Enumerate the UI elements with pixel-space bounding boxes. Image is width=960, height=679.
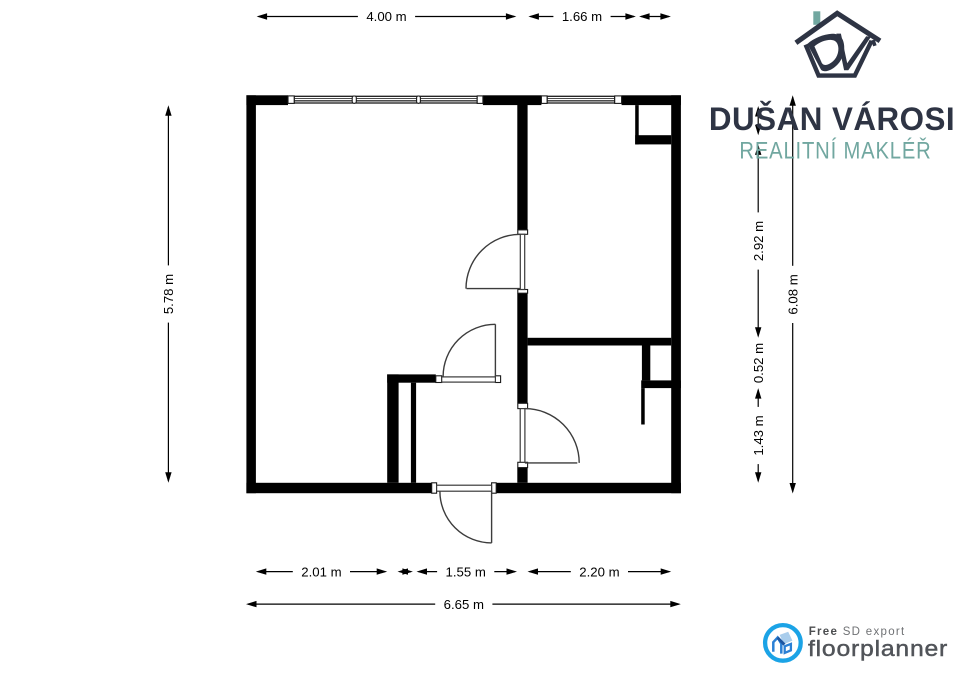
svg-text:1.43 m: 1.43 m — [751, 415, 766, 455]
svg-text:0.52 m: 0.52 m — [751, 343, 766, 383]
svg-text:2.20 m: 2.20 m — [579, 564, 619, 579]
svg-text:1.66 m: 1.66 m — [562, 9, 602, 24]
svg-text:5.78 m: 5.78 m — [161, 274, 176, 314]
svg-text:1.55 m: 1.55 m — [446, 564, 486, 579]
svg-text:2.01 m: 2.01 m — [301, 564, 341, 579]
svg-text:2.92 m: 2.92 m — [751, 221, 766, 261]
svg-text:DUŠAN VÁROSI: DUŠAN VÁROSI — [709, 101, 955, 138]
svg-text:REALITNÍ MAKLÉŘ: REALITNÍ MAKLÉŘ — [739, 137, 931, 164]
svg-text:4.00 m: 4.00 m — [366, 9, 406, 24]
svg-text:6.65 m: 6.65 m — [444, 597, 484, 612]
svg-text:6.08 m: 6.08 m — [785, 274, 800, 314]
svg-text:floorplanner: floorplanner — [808, 636, 948, 660]
